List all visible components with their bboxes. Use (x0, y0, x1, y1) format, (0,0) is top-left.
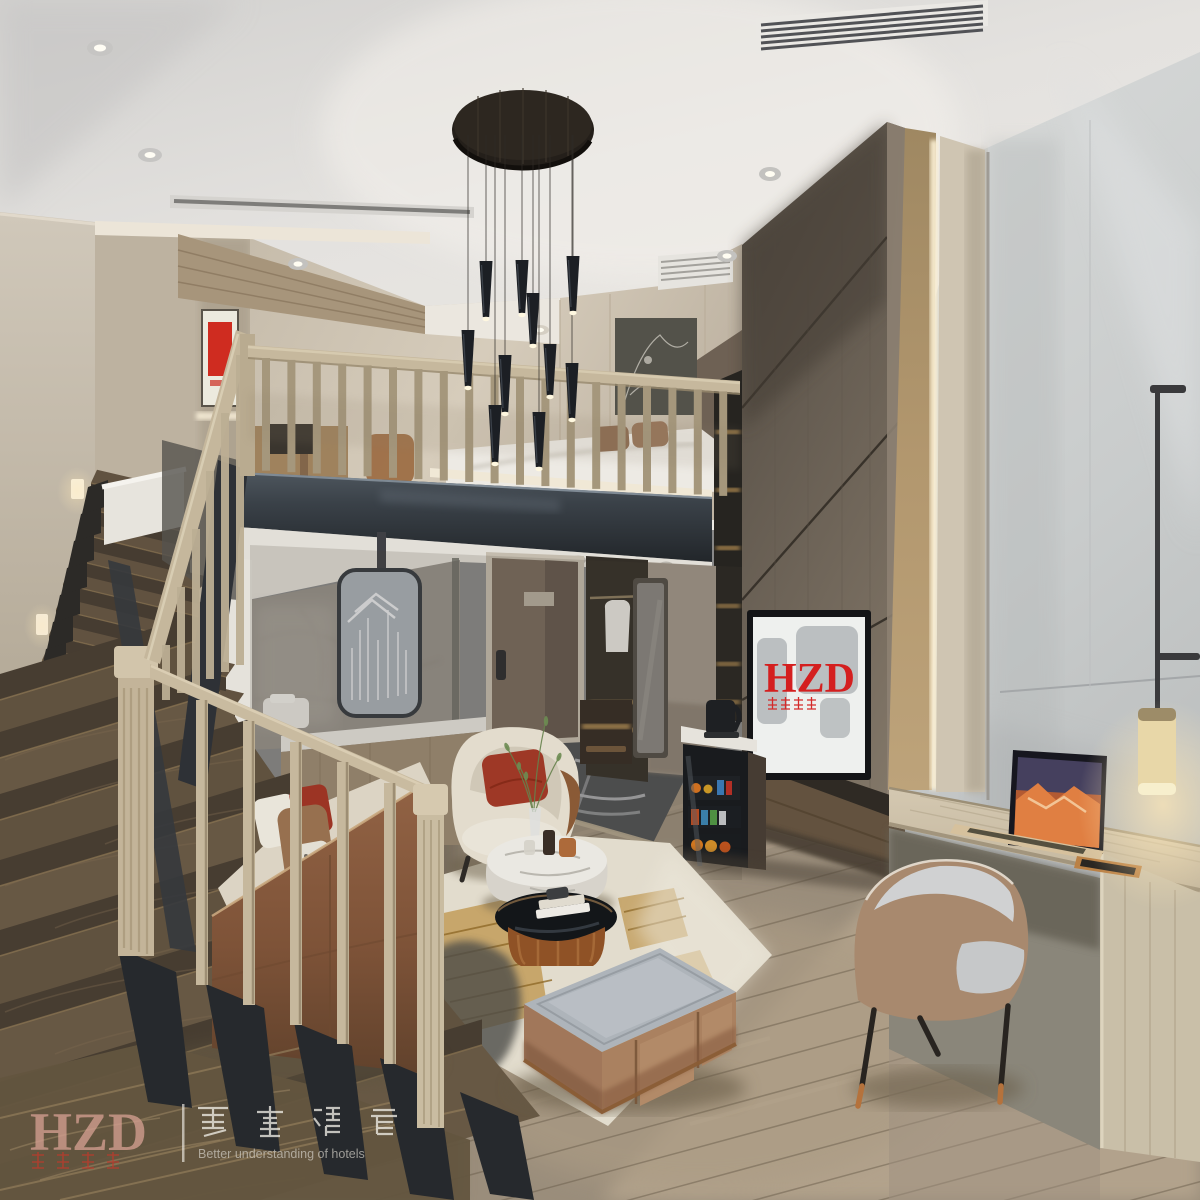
svg-text:HZD: HZD (764, 656, 855, 702)
svg-text:Better understanding of hot: Better understanding of hotels (198, 1147, 365, 1161)
